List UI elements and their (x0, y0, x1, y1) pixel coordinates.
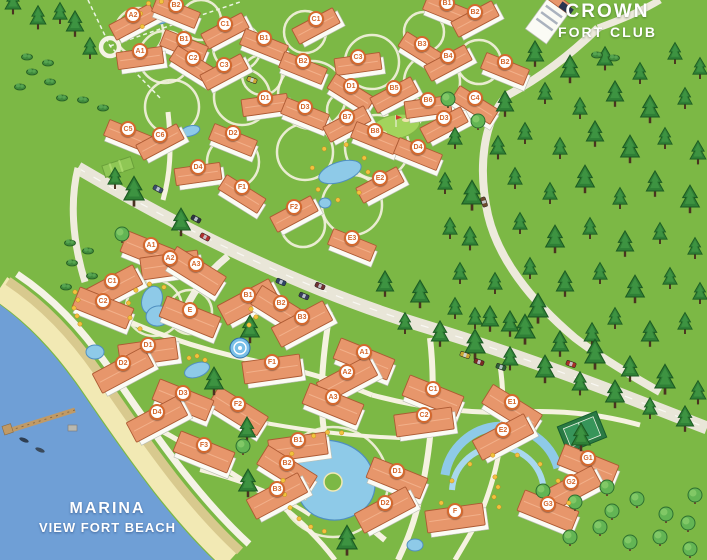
building-badge-A2: A2 (339, 364, 355, 380)
building-badge-D3: D3 (297, 99, 313, 115)
building-badge-A1: A1 (143, 237, 159, 253)
building-badge-B6: B6 (420, 92, 436, 108)
building-badge-D4: D4 (149, 404, 165, 420)
building-badge-F2: F2 (286, 199, 302, 215)
building-badge-B2: B2 (497, 54, 513, 70)
building-badge-C4: C4 (467, 90, 483, 106)
building-badge-D3: D3 (436, 110, 452, 126)
building-badge-B2: B2 (295, 53, 311, 69)
building-badge-E1: E1 (504, 394, 520, 410)
building-badge-C2: C2 (185, 50, 201, 66)
building-badge-C5: C5 (120, 121, 136, 137)
building-badge-D2: D2 (115, 355, 131, 371)
building-badge-B4: B4 (440, 48, 456, 64)
building-badge-E3: E3 (344, 230, 360, 246)
building-badge-F1: F1 (264, 354, 280, 370)
marina-label-line1: MARINA (15, 500, 200, 518)
building-badge-B3: B3 (269, 481, 285, 497)
building-badge-C6: C6 (152, 127, 168, 143)
building-badge-C2: C2 (416, 407, 432, 423)
building-badge-B2: B2 (279, 455, 295, 471)
building-badge-B1: B1 (240, 287, 256, 303)
building-badge-D1: D1 (343, 78, 359, 94)
building-badge-B5: B5 (386, 80, 402, 96)
building-badge-B8: B8 (367, 123, 383, 139)
building-badge-B1: B1 (439, 0, 455, 11)
building-badge-E: E (182, 302, 198, 318)
building-badge-F3: F3 (196, 437, 212, 453)
building-badge-C1: C1 (425, 381, 441, 397)
crown-label-line2: FORT CLUB (515, 24, 700, 40)
building-badge-C1: C1 (308, 11, 324, 27)
marina-label-line2: VIEW FORT BEACH (15, 520, 200, 535)
building-badge-A1: A1 (356, 344, 372, 360)
building-badge-B3: B3 (294, 309, 310, 325)
building-badge-B2: B2 (273, 295, 289, 311)
building-badge-G1: G1 (580, 450, 596, 466)
building-badge-D2: D2 (377, 495, 393, 511)
crown-label-line1: CROWN (515, 1, 700, 23)
building-badge-G3: G3 (540, 496, 556, 512)
building-badge-D3: D3 (175, 385, 191, 401)
building-badge-G2: G2 (563, 474, 579, 490)
building-badge-A3: A3 (188, 256, 204, 272)
building-badge-B1: B1 (290, 432, 306, 448)
resort-map: A2B2C1B1A1C2C3B1C1B2C3B3B4B1B2B2D1D1B5D3… (0, 0, 707, 560)
building-badge-F: F (447, 503, 463, 519)
building-badge-C3: C3 (350, 49, 366, 65)
building-badge-B2: B2 (467, 4, 483, 20)
badges-layer: A2B2C1B1A1C2C3B1C1B2C3B3B4B1B2B2D1D1B5D3… (0, 0, 707, 560)
building-badge-A3: A3 (325, 389, 341, 405)
building-badge-F1: F1 (234, 179, 250, 195)
building-badge-D4: D4 (410, 139, 426, 155)
building-badge-C2: C2 (95, 293, 111, 309)
crown-fort-club-label: CROWN FORT CLUB (515, 1, 700, 40)
building-badge-D2: D2 (225, 125, 241, 141)
building-badge-B2: B2 (168, 0, 184, 13)
building-badge-D1: D1 (257, 90, 273, 106)
building-badge-D4: D4 (190, 159, 206, 175)
building-badge-E2: E2 (495, 422, 511, 438)
building-badge-E2: E2 (372, 170, 388, 186)
building-badge-D1: D1 (389, 463, 405, 479)
building-badge-C1: C1 (217, 16, 233, 32)
building-badge-A1: A1 (132, 43, 148, 59)
building-badge-C3: C3 (216, 57, 232, 73)
building-badge-B1: B1 (176, 31, 192, 47)
building-badge-A2: A2 (125, 7, 141, 23)
building-badge-B3: B3 (414, 36, 430, 52)
building-badge-F2: F2 (230, 396, 246, 412)
building-badge-B1: B1 (256, 30, 272, 46)
building-badge-A2: A2 (162, 250, 178, 266)
building-badge-D1: D1 (140, 337, 156, 353)
building-badge-B7: B7 (339, 109, 355, 125)
building-badge-C1: C1 (104, 273, 120, 289)
marina-view-fort-beach-label: MARINA VIEW FORT BEACH (15, 500, 200, 535)
